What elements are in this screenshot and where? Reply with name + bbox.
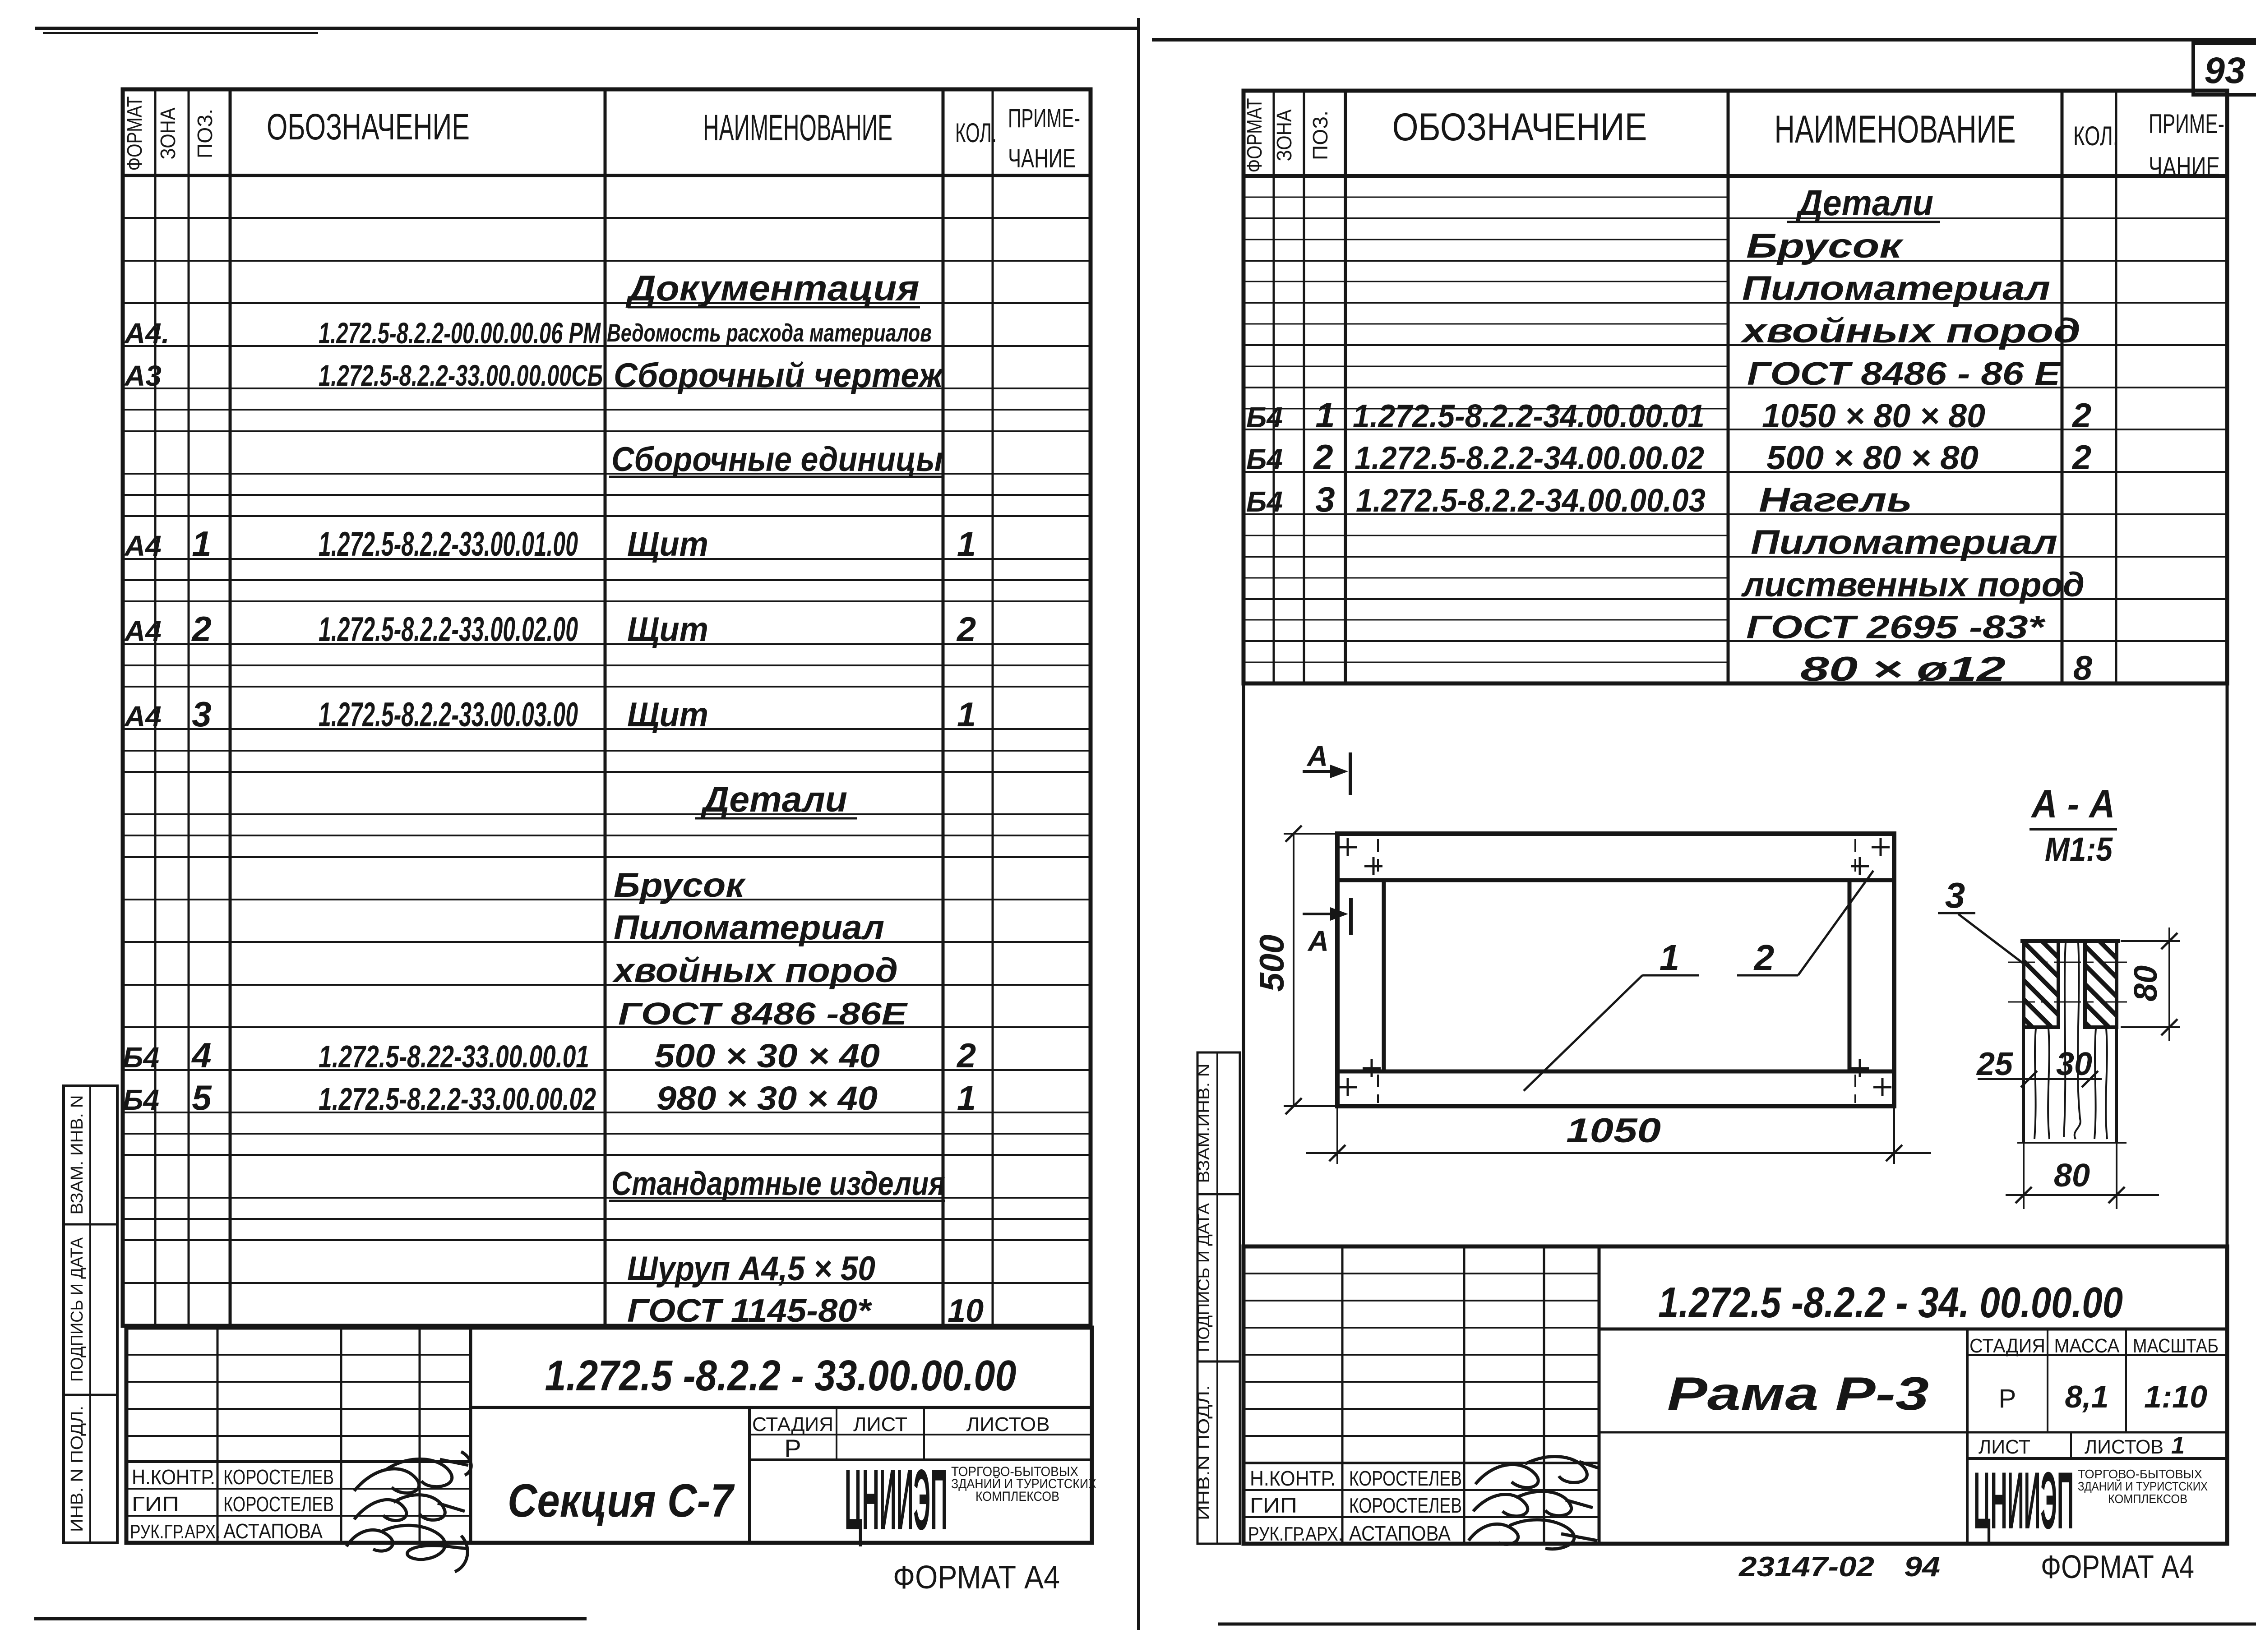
svg-text:93: 93 (2204, 50, 2245, 91)
svg-text:2: 2 (2071, 397, 2091, 435)
svg-text:3: 3 (1945, 875, 1965, 915)
svg-text:РУК.ГР.АРХ.: РУК.ГР.АРХ. (1248, 1523, 1343, 1545)
svg-text:лиственных пород: лиственных пород (1741, 566, 2085, 604)
svg-text:ГИП: ГИП (132, 1492, 179, 1516)
svg-text:1.272.5-8.2.2-33.00.00.02: 1.272.5-8.2.2-33.00.00.02 (319, 1081, 596, 1117)
svg-text:Щит: Щит (627, 525, 708, 563)
svg-text:1.272.5-8.2.2-00.00.00.06 РМ: 1.272.5-8.2.2-00.00.00.06 РМ (319, 316, 601, 350)
svg-text:80: 80 (2054, 1158, 2090, 1194)
svg-text:ПОЗ.: ПОЗ. (193, 109, 217, 158)
svg-text:МАССА: МАССА (2054, 1335, 2120, 1357)
svg-text:3: 3 (192, 694, 211, 734)
svg-text:1.272.5-8.2.2-33.00.03.00: 1.272.5-8.2.2-33.00.03.00 (319, 696, 578, 734)
svg-text:ЗОНА: ЗОНА (1272, 109, 1296, 161)
svg-text:ЦНИИЭП: ЦНИИЭП (1974, 1455, 2074, 1546)
svg-text:ПОДПИСЬ И ДАТА: ПОДПИСЬ И ДАТА (1194, 1203, 1213, 1352)
svg-text:1: 1 (957, 696, 976, 734)
svg-text:Документация: Документация (625, 268, 919, 308)
svg-text:Б4: Б4 (1246, 485, 1283, 518)
svg-text:Пиломатериал: Пиломатериал (614, 909, 884, 947)
svg-text:1.272.5-8.2.2-34.00.00.01: 1.272.5-8.2.2-34.00.00.01 (1353, 398, 1705, 434)
svg-text:А4: А4 (124, 700, 162, 733)
svg-text:ВЗАМ.ИНВ. N: ВЗАМ.ИНВ. N (1194, 1064, 1213, 1183)
svg-text:1: 1 (2171, 1432, 2185, 1459)
svg-text:НАИМЕНОВАНИЕ: НАИМЕНОВАНИЕ (703, 107, 892, 148)
svg-text:Б4: Б4 (1246, 443, 1283, 475)
svg-text:94: 94 (1904, 1551, 1940, 1583)
svg-text:Секция С-7: Секция С-7 (508, 1475, 735, 1527)
svg-text:АСТАПОВА: АСТАПОВА (1349, 1522, 1451, 1545)
svg-text:хвойных пород: хвойных пород (1740, 312, 2080, 350)
svg-text:23147-02: 23147-02 (1738, 1551, 1874, 1583)
svg-text:ВЗАМ. ИНВ. N: ВЗАМ. ИНВ. N (68, 1095, 87, 1215)
svg-text:КОЛ.: КОЛ. (955, 118, 997, 148)
svg-text:ФОРМАТ А4: ФОРМАТ А4 (2041, 1549, 2194, 1585)
svg-text:А: А (1306, 740, 1328, 772)
svg-text:1: 1 (192, 524, 211, 563)
svg-text:КОЛ.: КОЛ. (2073, 121, 2118, 151)
svg-text:2: 2 (956, 610, 976, 649)
svg-text:СТАДИЯ: СТАДИЯ (752, 1413, 833, 1435)
svg-text:ЛИСТОВ: ЛИСТОВ (2085, 1436, 2164, 1458)
svg-text:1.272.5-8.2.2-34.00.00.03: 1.272.5-8.2.2-34.00.00.03 (1356, 483, 1706, 519)
svg-text:ФОРМАТ: ФОРМАТ (123, 97, 146, 171)
svg-text:РУК.ГР.АРХ.: РУК.ГР.АРХ. (130, 1521, 220, 1543)
svg-text:8,1: 8,1 (2065, 1379, 2108, 1414)
svg-text:2: 2 (2071, 438, 2091, 477)
svg-text:Детали: Детали (700, 779, 847, 819)
svg-text:1: 1 (957, 1079, 976, 1117)
svg-text:1050 × 80 × 80: 1050 × 80 × 80 (1762, 397, 1985, 434)
svg-text:30: 30 (2056, 1046, 2092, 1082)
svg-text:1.272.5-8.2.2-33.00.01.00: 1.272.5-8.2.2-33.00.01.00 (319, 525, 578, 563)
svg-text:1.272.5-8.22-33.00.00.01: 1.272.5-8.22-33.00.00.01 (319, 1039, 589, 1074)
svg-text:ФОРМАТ А4: ФОРМАТ А4 (893, 1560, 1060, 1596)
svg-text:Стандартные изделия: Стандартные изделия (611, 1165, 945, 1202)
svg-text:Брусок: Брусок (1746, 227, 1904, 265)
svg-text:Рама Р-3: Рама Р-3 (1667, 1368, 1929, 1420)
svg-text:А3: А3 (124, 360, 162, 392)
svg-text:АСТАПОВА: АСТАПОВА (223, 1519, 323, 1543)
svg-text:КОРОСТЕЛЕВ: КОРОСТЕЛЕВ (223, 1492, 334, 1516)
svg-text:Р: Р (1999, 1384, 2016, 1413)
svg-text:2: 2 (1313, 437, 1333, 477)
svg-text:СТАДИЯ: СТАДИЯ (1969, 1335, 2045, 1357)
svg-text:5: 5 (192, 1078, 212, 1117)
svg-text:500: 500 (1253, 935, 1291, 992)
svg-text:1.272.5 -8.2.2 - 34. 00.00.00: 1.272.5 -8.2.2 - 34. 00.00.00 (1658, 1278, 2123, 1327)
svg-text:Щит: Щит (627, 696, 708, 734)
svg-text:1: 1 (1315, 395, 1335, 435)
svg-text:КОРОСТЕЛЕВ: КОРОСТЕЛЕВ (1349, 1494, 1462, 1517)
svg-text:Б4: Б4 (123, 1084, 159, 1116)
svg-text:ИНВ.N ПОДЛ.: ИНВ.N ПОДЛ. (1194, 1385, 1213, 1520)
svg-text:Н.КОНТР.: Н.КОНТР. (1250, 1467, 1336, 1490)
svg-text:Брусок: Брусок (614, 866, 746, 904)
svg-text:Пиломатериал: Пиломатериал (1742, 269, 2050, 308)
svg-text:500 × 30 × 40: 500 × 30 × 40 (654, 1037, 880, 1075)
svg-text:КОМПЛЕКСОВ: КОМПЛЕКСОВ (975, 1489, 1059, 1504)
svg-text:10: 10 (948, 1293, 984, 1329)
svg-text:Щит: Щит (627, 610, 708, 649)
svg-text:МАСШТАБ: МАСШТАБ (2133, 1335, 2219, 1357)
svg-text:1.272.5-8.2.2-33.00.00.00СБ: 1.272.5-8.2.2-33.00.00.00СБ (319, 359, 603, 392)
svg-text:НАИМЕНОВАНИЕ: НАИМЕНОВАНИЕ (1775, 108, 2016, 151)
svg-text:ГОСТ 1145-80*: ГОСТ 1145-80* (627, 1293, 872, 1329)
svg-text:ПРИМЕ-: ПРИМЕ- (1008, 104, 1080, 133)
svg-text:980 × 30 × 40: 980 × 30 × 40 (656, 1080, 878, 1117)
svg-text:хвойных пород: хвойных пород (612, 951, 898, 990)
svg-text:2: 2 (1753, 937, 1775, 978)
svg-text:2: 2 (956, 1037, 976, 1075)
svg-text:КОМПЛЕКСОВ: КОМПЛЕКСОВ (2108, 1492, 2187, 1506)
svg-text:Детали: Детали (1795, 183, 1933, 223)
svg-text:ГОСТ 2695 -83*: ГОСТ 2695 -83* (1746, 609, 2046, 646)
svg-text:1.272.5 -8.2.2 - 33.00.00.00: 1.272.5 -8.2.2 - 33.00.00.00 (545, 1352, 1017, 1400)
svg-text:ПОДПИСЬ И ДАТА: ПОДПИСЬ И ДАТА (68, 1237, 87, 1382)
svg-text:4: 4 (191, 1035, 211, 1075)
svg-text:ЛИСТОВ: ЛИСТОВ (966, 1413, 1050, 1435)
svg-text:Шуруп А4,5 × 50: Шуруп А4,5 × 50 (627, 1250, 875, 1288)
svg-text:80: 80 (2128, 965, 2164, 1001)
svg-text:ЛИСТ: ЛИСТ (853, 1413, 907, 1435)
svg-text:А4: А4 (124, 530, 162, 562)
svg-text:КОРОСТЕЛЕВ: КОРОСТЕЛЕВ (1349, 1467, 1462, 1490)
svg-text:ПРИМЕ-: ПРИМЕ- (2149, 109, 2224, 139)
svg-text:500 × 80 × 80: 500 × 80 × 80 (1766, 439, 1979, 476)
svg-text:Р: Р (784, 1434, 801, 1463)
svg-text:А - А: А - А (2031, 781, 2115, 826)
svg-text:ГОСТ 8486 - 86 Е: ГОСТ 8486 - 86 Е (1747, 356, 2061, 392)
svg-text:А4: А4 (124, 615, 162, 647)
svg-text:Н.КОНТР.: Н.КОНТР. (132, 1465, 215, 1489)
svg-text:25: 25 (1976, 1046, 2013, 1082)
svg-text:Сборочный чертеж: Сборочный чертеж (614, 356, 945, 395)
svg-text:80 × ø12: 80 × ø12 (1800, 650, 2006, 688)
svg-text:ЗДАНИЙ И ТУРИСТСКИХ: ЗДАНИЙ И ТУРИСТСКИХ (2078, 1479, 2208, 1493)
svg-text:Ведомость расхода материалов: Ведомость расхода материалов (607, 318, 932, 347)
svg-text:А: А (1307, 925, 1329, 957)
svg-text:2: 2 (191, 609, 211, 649)
svg-text:КОРОСТЕЛЕВ: КОРОСТЕЛЕВ (223, 1465, 334, 1489)
svg-text:ГИП: ГИП (1250, 1494, 1297, 1517)
svg-text:М1:5: М1:5 (2045, 831, 2113, 868)
svg-text:Б4: Б4 (1246, 401, 1283, 434)
svg-text:1: 1 (1660, 937, 1680, 978)
svg-text:ЧАНИЕ: ЧАНИЕ (1008, 144, 1076, 173)
svg-text:ОБОЗНАЧЕНИЕ: ОБОЗНАЧЕНИЕ (1392, 106, 1647, 149)
svg-text:ЗОНА: ЗОНА (156, 107, 180, 159)
svg-text:Сборочные единицы: Сборочные единицы (611, 440, 943, 479)
svg-text:А4.: А4. (124, 317, 170, 350)
svg-text:ЦНИИЭП: ЦНИИЭП (845, 1452, 948, 1548)
svg-text:ПОЗ.: ПОЗ. (1308, 111, 1332, 160)
svg-text:ОБОЗНАЧЕНИЕ: ОБОЗНАЧЕНИЕ (267, 106, 470, 148)
svg-text:ИНВ. N ПОДЛ.: ИНВ. N ПОДЛ. (68, 1406, 87, 1532)
svg-text:ГОСТ 8486 -86Е: ГОСТ 8486 -86Е (618, 996, 908, 1031)
svg-text:ФОРМАТ: ФОРМАТ (1243, 98, 1266, 173)
svg-text:ЧАНИЕ: ЧАНИЕ (2149, 152, 2220, 182)
svg-text:Пиломатериал: Пиломатериал (1751, 523, 2057, 562)
svg-text:1: 1 (957, 525, 976, 563)
svg-text:1:10: 1:10 (2144, 1379, 2207, 1414)
svg-text:1050: 1050 (1566, 1112, 1661, 1150)
svg-text:ЛИСТ: ЛИСТ (1979, 1436, 2030, 1458)
svg-text:3: 3 (1315, 480, 1335, 519)
svg-text:Б4: Б4 (123, 1041, 159, 1074)
svg-text:8: 8 (2073, 649, 2093, 688)
svg-text:1.272.5-8.2.2-33.00.02.00: 1.272.5-8.2.2-33.00.02.00 (319, 610, 578, 649)
svg-text:1.272.5-8.2.2-34.00.00.02: 1.272.5-8.2.2-34.00.00.02 (1355, 440, 1704, 476)
svg-text:Нагель: Нагель (1759, 481, 1912, 519)
